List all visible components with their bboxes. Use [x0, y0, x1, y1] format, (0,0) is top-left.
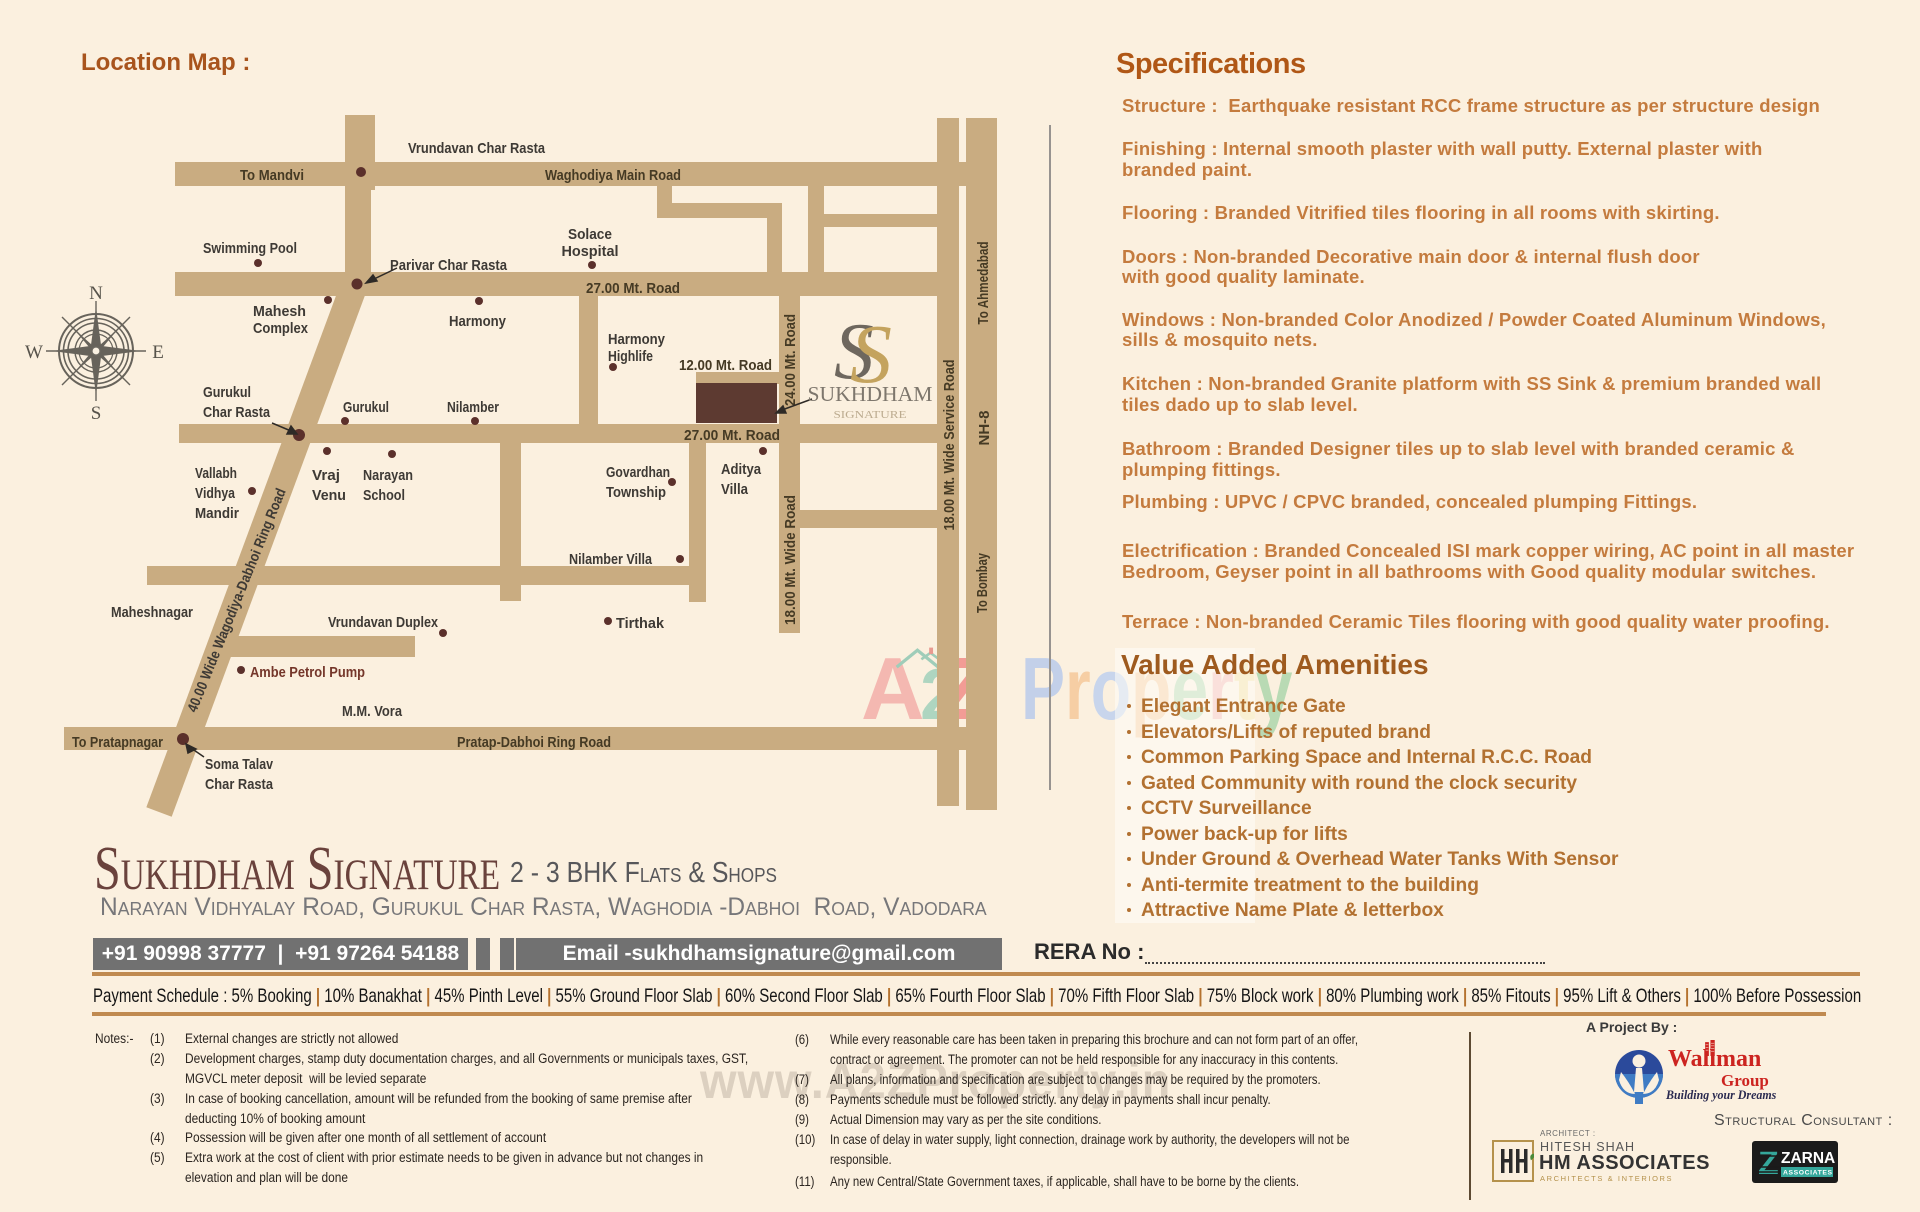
svg-text:E: E — [152, 342, 164, 363]
svg-text:School: School — [363, 487, 405, 504]
svg-text:Gurukul: Gurukul — [343, 399, 389, 416]
svg-text:N: N — [89, 283, 103, 304]
svg-text:18.00 Mt. Wide Road: 18.00 Mt. Wide Road — [782, 495, 799, 625]
svg-text:Harmony: Harmony — [608, 331, 666, 348]
svg-text:Highlife: Highlife — [608, 348, 653, 365]
svg-text:Villa: Villa — [721, 481, 749, 498]
svg-text:12.00 Mt. Road: 12.00 Mt. Road — [679, 357, 772, 374]
svg-text:Soma Talav: Soma Talav — [205, 756, 274, 773]
svg-text:Vrundavan Char Rasta: Vrundavan Char Rasta — [408, 140, 546, 157]
svg-text:Z: Z — [1758, 1144, 1779, 1182]
svg-text:To Pratapnagar: To Pratapnagar — [72, 734, 163, 751]
svg-text:NH-8: NH-8 — [976, 410, 993, 445]
svg-text:Harmony: Harmony — [449, 313, 507, 330]
svg-text:To Mandvi: To Mandvi — [240, 167, 304, 184]
svg-text:Ambe Petrol Pump: Ambe Petrol Pump — [250, 664, 365, 681]
svg-text:Pratap-Dabhoi Ring Road: Pratap-Dabhoi Ring Road — [457, 734, 611, 751]
svg-text:24.00 Mt. Road: 24.00 Mt. Road — [782, 314, 799, 406]
svg-text:Vidhya: Vidhya — [195, 485, 236, 502]
svg-text:Parivar Char Rasta: Parivar Char Rasta — [390, 257, 508, 274]
svg-text:Nilamber Villa: Nilamber Villa — [569, 551, 653, 568]
svg-text:Venu: Venu — [312, 487, 346, 504]
svg-text:27.00 Mt. Road: 27.00 Mt. Road — [586, 280, 680, 297]
svg-text:Maheshnagar: Maheshnagar — [111, 604, 193, 621]
svg-text:Township: Township — [606, 484, 666, 501]
svg-text:Tirthak: Tirthak — [616, 615, 665, 632]
svg-text:27.00 Mt. Road: 27.00 Mt. Road — [684, 427, 780, 444]
svg-text:To Bombay: To Bombay — [974, 553, 991, 613]
svg-text:SUKHDHAM: SUKHDHAM — [808, 382, 933, 406]
svg-text:Aditya: Aditya — [721, 461, 762, 478]
svg-text:SIGNATURE: SIGNATURE — [834, 409, 907, 421]
svg-text:Mahesh: Mahesh — [253, 303, 306, 320]
svg-text:W: W — [25, 342, 43, 363]
svg-text:To Ahmedabad: To Ahmedabad — [975, 242, 992, 325]
svg-text:Mandir: Mandir — [195, 505, 239, 522]
svg-text:Nilamber: Nilamber — [447, 399, 499, 416]
svg-text:Hospital: Hospital — [562, 243, 619, 260]
svg-text:M.M. Vora: M.M. Vora — [342, 703, 403, 720]
svg-text:Swimming Pool: Swimming Pool — [203, 240, 297, 257]
svg-text:ASSOCIATES: ASSOCIATES — [1783, 1170, 1833, 1177]
svg-text:Vraj: Vraj — [312, 467, 340, 484]
svg-text:Vrundavan Duplex: Vrundavan Duplex — [328, 614, 439, 631]
svg-text:Gurukul: Gurukul — [203, 384, 251, 401]
svg-text:Solace: Solace — [568, 226, 612, 243]
svg-text:Vallabh: Vallabh — [195, 465, 237, 482]
svg-text:Waghodiya Main Road: Waghodiya Main Road — [545, 167, 681, 184]
svg-text:S: S — [91, 403, 102, 424]
svg-text:Char Rasta: Char Rasta — [205, 776, 274, 793]
svg-text:Narayan: Narayan — [363, 467, 413, 484]
svg-text:Complex: Complex — [253, 320, 309, 337]
svg-text:18.00 Mt. Wide Service Road: 18.00 Mt. Wide Service Road — [941, 360, 958, 531]
svg-text:ZARNA: ZARNA — [1781, 1150, 1835, 1167]
svg-text:Char Rasta: Char Rasta — [203, 404, 271, 421]
svg-text:Govardhan: Govardhan — [606, 464, 670, 481]
